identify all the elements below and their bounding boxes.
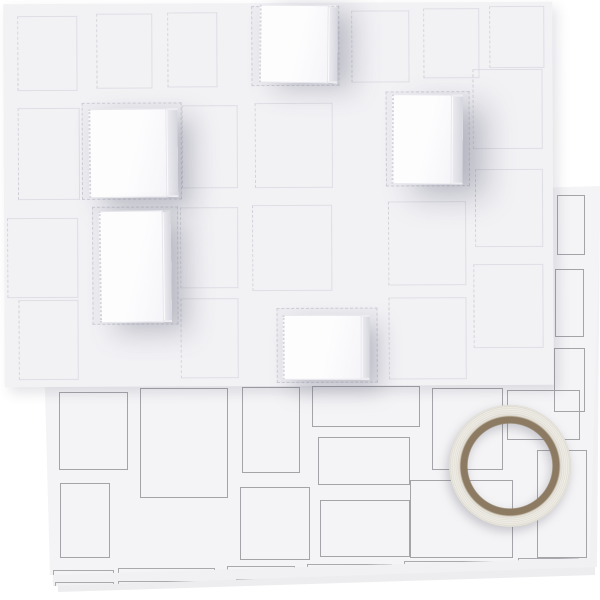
box-front-face (259, 5, 329, 84)
opened-door-box (259, 5, 338, 84)
closed-door-outline (182, 105, 238, 188)
box-front-face (88, 108, 167, 198)
box-side-flap (163, 212, 172, 320)
edge-cut-line (45, 482, 46, 569)
die-cut-outline (312, 386, 420, 427)
die-cut-outline (555, 269, 584, 337)
box-front-face (99, 210, 164, 323)
closed-door-outline (18, 108, 80, 200)
die-cut-outline (140, 388, 228, 498)
closed-door-outline (472, 69, 542, 149)
box-front-face (283, 315, 362, 380)
closed-door-outline (252, 205, 332, 291)
closed-door-outline (17, 16, 77, 91)
die-cut-outline (554, 348, 585, 412)
die-cut-outline (240, 487, 310, 560)
closed-door-outline (388, 201, 466, 285)
box-side-flap (166, 110, 178, 195)
closed-door-outline (7, 218, 78, 298)
closed-door-outline (489, 6, 544, 68)
closed-door-outline (255, 103, 333, 188)
die-cut-outline (59, 392, 128, 470)
closed-door-outline (180, 207, 238, 288)
closed-door-outline (475, 169, 543, 247)
closed-door-outline (167, 12, 217, 87)
edge-cut-line (44, 392, 45, 474)
opened-door-box (391, 94, 463, 184)
box-side-flap (328, 7, 338, 81)
closed-door-outline (96, 14, 152, 89)
die-cut-outline (318, 437, 410, 485)
opened-door-box (99, 210, 172, 323)
die-cut-outline (557, 195, 585, 255)
closed-door-outline (18, 300, 78, 380)
closed-door-outline (351, 10, 409, 82)
box-side-flap (451, 97, 463, 183)
closed-door-outline (180, 298, 238, 378)
box-side-flap (362, 317, 370, 378)
box-front-face (391, 94, 452, 184)
die-cut-outline (60, 483, 110, 558)
adhesive-tape-roll (449, 405, 571, 527)
die-cut-outline (320, 500, 410, 557)
closed-door-outline (473, 264, 543, 348)
closed-door-outline (388, 297, 466, 379)
opened-door-box (88, 108, 178, 198)
product-photo-advent-calendar-kit (0, 0, 600, 600)
opened-door-box (283, 315, 370, 380)
closed-door-outline (423, 8, 479, 78)
advent-calendar-board (3, 2, 554, 387)
die-cut-outline (242, 387, 300, 473)
